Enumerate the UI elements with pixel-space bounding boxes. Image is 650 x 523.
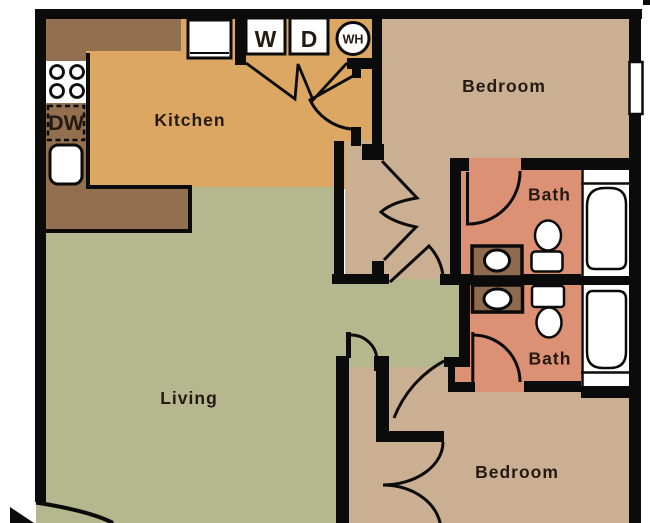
svg-text:D: D [301,26,318,52]
svg-text:Bath: Bath [528,185,571,205]
svg-text:Kitchen: Kitchen [154,110,225,130]
svg-text:Bedroom: Bedroom [462,76,546,96]
svg-text:Bedroom: Bedroom [475,462,559,482]
svg-text:W: W [255,26,277,52]
svg-text:WH: WH [343,33,364,47]
svg-text:Living: Living [160,388,218,408]
svg-text:DW: DW [48,111,85,135]
svg-text:Bath: Bath [529,349,572,369]
